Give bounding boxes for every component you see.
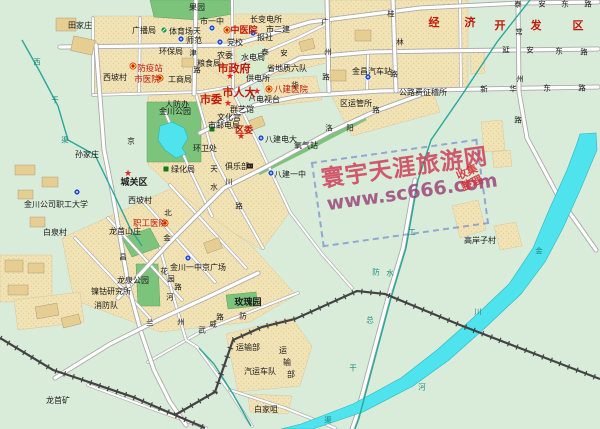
map-label: 防疫站 [137, 63, 163, 74]
map-label: 龙首矿 [46, 395, 70, 405]
building [8, 285, 28, 295]
school-icon [74, 189, 80, 195]
street-name-char: 兰 [146, 318, 154, 328]
street-name-char: 常 [515, 28, 523, 37]
street-name-char: 路 [322, 72, 330, 82]
street-name-char: 路 [584, 0, 592, 9]
map-label: 长变电所 [250, 14, 282, 24]
map-label: 市一中 [200, 16, 224, 26]
street-name-char: 河 [166, 293, 174, 302]
building [30, 217, 45, 227]
map-label: 党校 [227, 37, 243, 47]
street-name-char: 京 [127, 136, 135, 146]
street-name-char: 防 [239, 311, 247, 321]
map-label: 运输部 [236, 342, 260, 352]
street-name-char: 天 [210, 165, 218, 174]
map-label: 中医院 [230, 24, 257, 36]
street-name-char: 林 [396, 37, 404, 47]
street-name-char: 金 [163, 233, 171, 243]
street-name-char: 津 [189, 49, 197, 58]
street-name-char: 桂 [387, 9, 395, 19]
street-name-char: 华 [509, 84, 517, 94]
school-dot [367, 76, 369, 78]
map-label: 供电所 [246, 73, 270, 83]
building [5, 260, 23, 272]
street-name-char: 东 [561, 0, 569, 9]
street-name-char: 州 [177, 318, 185, 327]
water-name-char: 川 [474, 308, 482, 317]
school-icon [209, 25, 215, 31]
street-name-char: 安 [526, 45, 534, 55]
map-label: 孙家庄 [75, 149, 99, 159]
water-name-char: 金 [535, 246, 543, 256]
street-name-char: 延 [502, 45, 510, 55]
map-label: 龙泉公园 [117, 275, 149, 285]
map-label: 龙首山庄 [109, 226, 141, 236]
map-label: 八建电大 [265, 134, 297, 144]
map-label: 绿化局 [171, 164, 195, 174]
street-name-char: 路 [216, 312, 224, 322]
street-name-char: 州 [516, 75, 524, 84]
map-svg: ★★★★★ 市政府市人大市委经济开发区中医院区委八建医院职工医院防疫站市医院果园… [0, 0, 600, 429]
map-label: 体育场 [169, 26, 193, 36]
street-name-char: 阳 [346, 124, 354, 133]
street-name-char: 武 [198, 325, 206, 335]
building [28, 263, 44, 273]
map-label: 镍钴研究所 [91, 286, 131, 296]
school-dot [180, 38, 182, 40]
hospital-icon [224, 27, 230, 33]
map-label: 师范 [186, 35, 202, 45]
map-label: 市邮电局 [208, 120, 240, 130]
map-label: 发 [530, 18, 543, 32]
street-name-char: 北 [164, 209, 172, 218]
map-label: 玫瑰园 [234, 296, 261, 308]
street-name-char: 华 [291, 80, 299, 90]
street-name-char: 路 [578, 83, 586, 93]
map-label: 市政府 [218, 61, 251, 75]
building [355, 30, 371, 41]
building [182, 58, 194, 67]
post-icon [164, 167, 169, 172]
map-label: 部 [287, 369, 295, 379]
water-name-char: 防 [372, 267, 380, 277]
map-label: 白泉村 [43, 227, 67, 237]
water-name-char: 总 [366, 315, 374, 325]
street-name-char: 广 [321, 17, 329, 27]
map-label: 环保局 [159, 46, 183, 56]
building [42, 177, 58, 187]
map-label: 城关区 [120, 176, 147, 188]
building [330, 70, 346, 81]
post-square [164, 167, 169, 172]
map-label: 报社 [257, 32, 273, 42]
map-label: 氧气站 [294, 140, 318, 150]
water-name-char: 西 [33, 58, 41, 67]
school-dot [219, 41, 221, 43]
map-label: 公路费征稽所 [399, 87, 447, 97]
building [18, 190, 33, 199]
hospital-icon [266, 86, 272, 92]
map-label: 广播局 [132, 25, 156, 35]
map-label: 输 [283, 357, 291, 367]
map-label: 市医院 [134, 74, 160, 85]
school-dot [187, 257, 189, 259]
map-label: 金川公司职工大学 [24, 199, 88, 209]
school-icon [258, 135, 264, 141]
street-name-char: 川 [225, 178, 233, 187]
map-label: 经 [429, 15, 440, 29]
map-label: 汽运车队 [244, 366, 276, 376]
street-name-char: 洛 [325, 123, 333, 133]
school-dot [211, 27, 213, 29]
street-name-char: 路 [372, 105, 380, 115]
cinema-dot [251, 165, 253, 167]
street-name-char: 州 [324, 48, 332, 57]
street-name-char: 路 [580, 47, 588, 57]
water-name-char: 渠 [61, 135, 69, 145]
map-label: 市委 [200, 92, 223, 106]
street-name-char: 泰 [514, 0, 522, 9]
water-name-char: 干 [51, 96, 59, 105]
street-name-char: 泰 [261, 47, 269, 57]
street-name-char: 安 [280, 48, 288, 58]
map-label: 环卫处 [193, 143, 217, 153]
water-name-char: 水 [386, 268, 394, 278]
water-name-char: 干 [349, 364, 357, 373]
map-label: 济 [465, 15, 477, 29]
water-name-char: 工 [408, 228, 416, 237]
map-label: 西坡村 [128, 195, 152, 205]
school-dot [270, 172, 272, 174]
urban-area [492, 150, 512, 168]
street-name-char: 东 [543, 83, 551, 93]
map-label: 区 [573, 19, 584, 32]
map-label: 果园 [189, 3, 205, 12]
map-label: 区运管所 [340, 98, 372, 108]
map-label: 省地质六队 [267, 63, 307, 73]
map-label: 白家咀 [254, 404, 278, 414]
map-label: 八建一中 [274, 169, 306, 179]
road [194, 0, 196, 94]
street-name-char: 昌 [119, 253, 127, 262]
map-label: 消防队 [94, 300, 118, 310]
map-label: 运 [279, 346, 287, 355]
school-dot [260, 137, 262, 139]
map-label: 西坡村 [103, 72, 127, 82]
street-name-char: 安 [538, 0, 546, 9]
street-name-char: 路 [174, 282, 182, 292]
urban-area [481, 120, 505, 152]
map-label: 俱乐部 [225, 161, 249, 171]
street-name-char: 新 [480, 84, 488, 94]
street-name-char: 路 [235, 201, 243, 211]
map-label: 金川一中京广场 [170, 262, 226, 272]
road [460, 0, 461, 89]
street-name-char: 路 [514, 115, 522, 125]
street-name-char: 路 [193, 65, 201, 75]
map-canvas[interactable]: ★★★★★ 市政府市人大市委经济开发区中医院区委八建医院职工医院防疫站市医院果园… [0, 0, 600, 429]
building [15, 165, 35, 175]
map-label: 开 [495, 19, 506, 32]
school-icon [178, 36, 184, 42]
street-name-char: 天 [193, 27, 201, 36]
school-icon [185, 255, 191, 261]
water-name-char: 渠 [324, 415, 332, 425]
water-name-char: 河 [418, 383, 426, 392]
map-label: 工商局 [168, 74, 192, 84]
school-dot [76, 191, 78, 193]
map-label: 田家庄 [68, 20, 92, 30]
school-icon [217, 39, 223, 45]
map-label: 电视台 [256, 94, 280, 104]
map-label: 高岸子村 [464, 235, 496, 245]
sport-icon [161, 27, 167, 33]
street-name-char: 路 [390, 69, 398, 79]
street-name-char: 东 [555, 46, 563, 56]
map-label: 金昌汽车站 [352, 66, 392, 76]
street-name-char: 水 [210, 182, 218, 192]
map-label: 市人大 [223, 85, 256, 99]
map-label: 金川公园 [159, 106, 191, 116]
hospital-icon [130, 63, 136, 69]
